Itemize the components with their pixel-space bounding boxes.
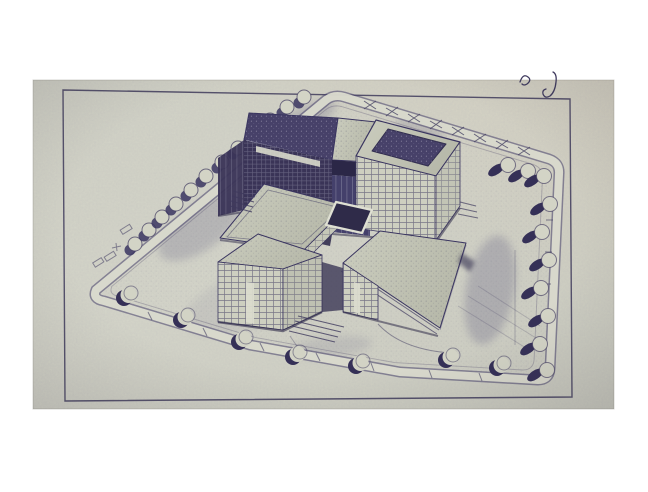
gap-shadow: [322, 262, 343, 312]
screenshot-root: [0, 0, 648, 492]
wing-doorway-slit: [354, 282, 360, 314]
drawing-canvas: [0, 0, 648, 492]
building-complex: [218, 113, 478, 342]
doorway-slit: [246, 282, 254, 324]
